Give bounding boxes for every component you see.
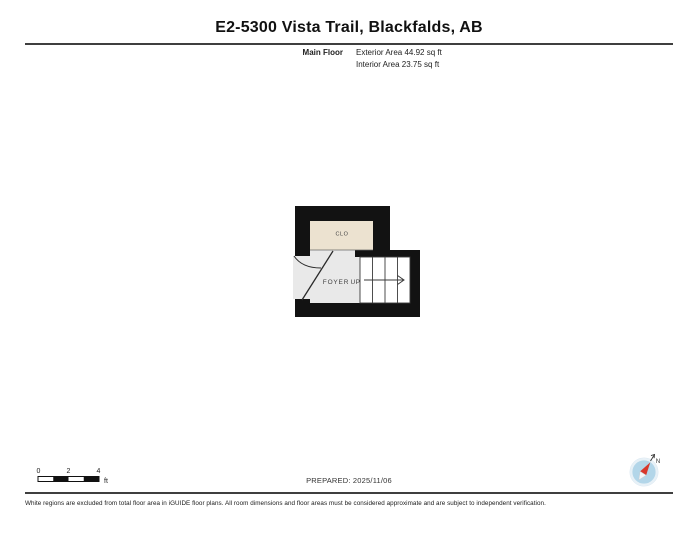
staircase <box>360 257 410 303</box>
floor-name-label: Main Floor <box>240 48 343 57</box>
interior-area-text: Interior Area 23.75 sq ft <box>356 60 439 69</box>
header-divider <box>25 43 673 45</box>
wall-right-upper <box>373 206 390 257</box>
foyer-floor <box>293 250 360 303</box>
exterior-area-text: Exterior Area 44.92 sq ft <box>356 48 442 57</box>
prepared-date-text: PREPARED: 2025/11/06 <box>0 476 698 485</box>
compass: N <box>627 448 665 488</box>
disclaimer-text: White regions are excluded from total fl… <box>25 500 678 507</box>
floor-plan-page: E2-5300 Vista Trail, Blackfalds, AB Main… <box>0 0 698 540</box>
north-label: N <box>656 458 660 465</box>
scale-tick-4: 4 <box>97 468 101 475</box>
scale-tick-0: 0 <box>37 468 41 475</box>
page-title: E2-5300 Vista Trail, Blackfalds, AB <box>0 19 698 37</box>
footer-divider <box>25 492 673 494</box>
wall-bottom <box>295 303 420 317</box>
foyer-label: FOYER <box>323 279 349 286</box>
floor-plan-diagram: CLO FOYER UP <box>280 195 430 330</box>
up-label: UP <box>350 279 360 286</box>
closet-label: CLO <box>335 232 348 238</box>
scale-tick-2: 2 <box>67 468 71 475</box>
north-arrow-icon <box>651 455 655 462</box>
wall-left-upper <box>295 206 310 256</box>
